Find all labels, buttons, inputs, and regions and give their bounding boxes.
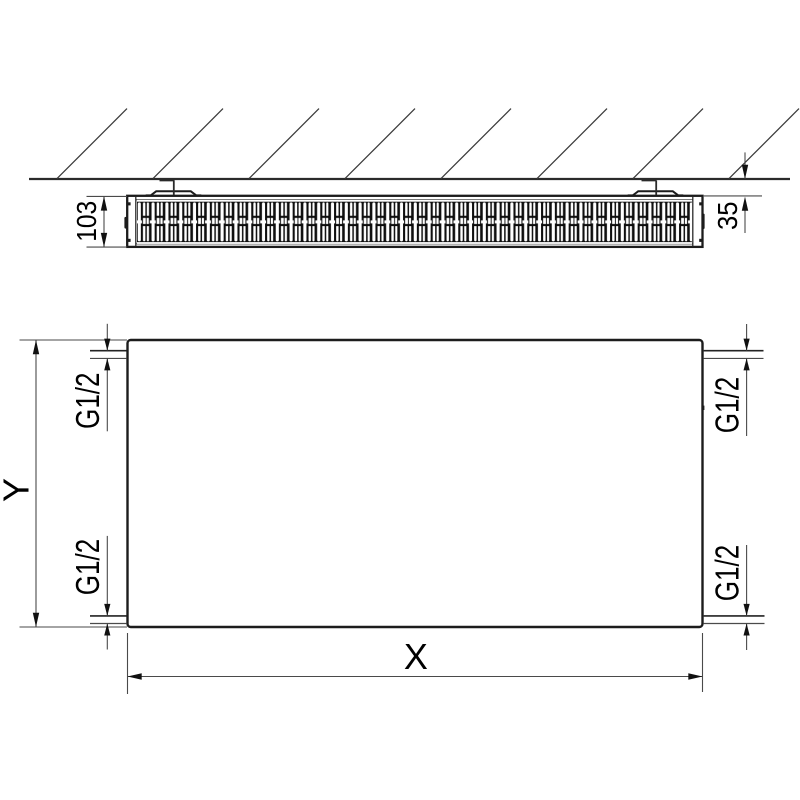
- svg-text:Y: Y: [0, 478, 36, 502]
- svg-text:G1/2: G1/2: [709, 377, 746, 434]
- svg-text:X: X: [404, 636, 428, 677]
- svg-text:G1/2: G1/2: [709, 545, 746, 602]
- svg-text:35: 35: [712, 202, 743, 231]
- svg-text:G1/2: G1/2: [70, 372, 107, 429]
- svg-text:103: 103: [71, 201, 102, 242]
- svg-text:G1/2: G1/2: [70, 539, 107, 596]
